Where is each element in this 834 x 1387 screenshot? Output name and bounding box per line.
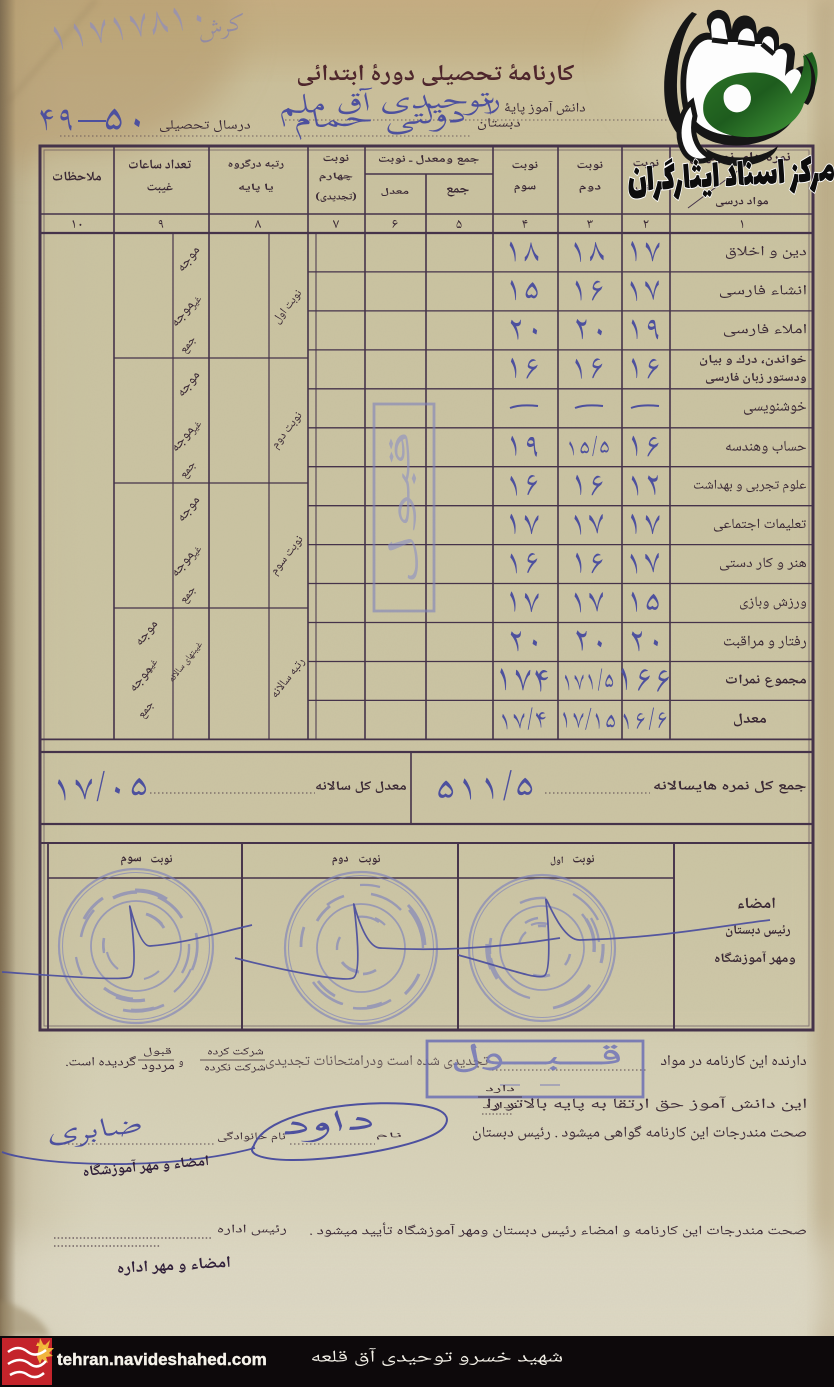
svg-text:tehran.navideshahed.com: tehran.navideshahed.com <box>57 1350 267 1369</box>
